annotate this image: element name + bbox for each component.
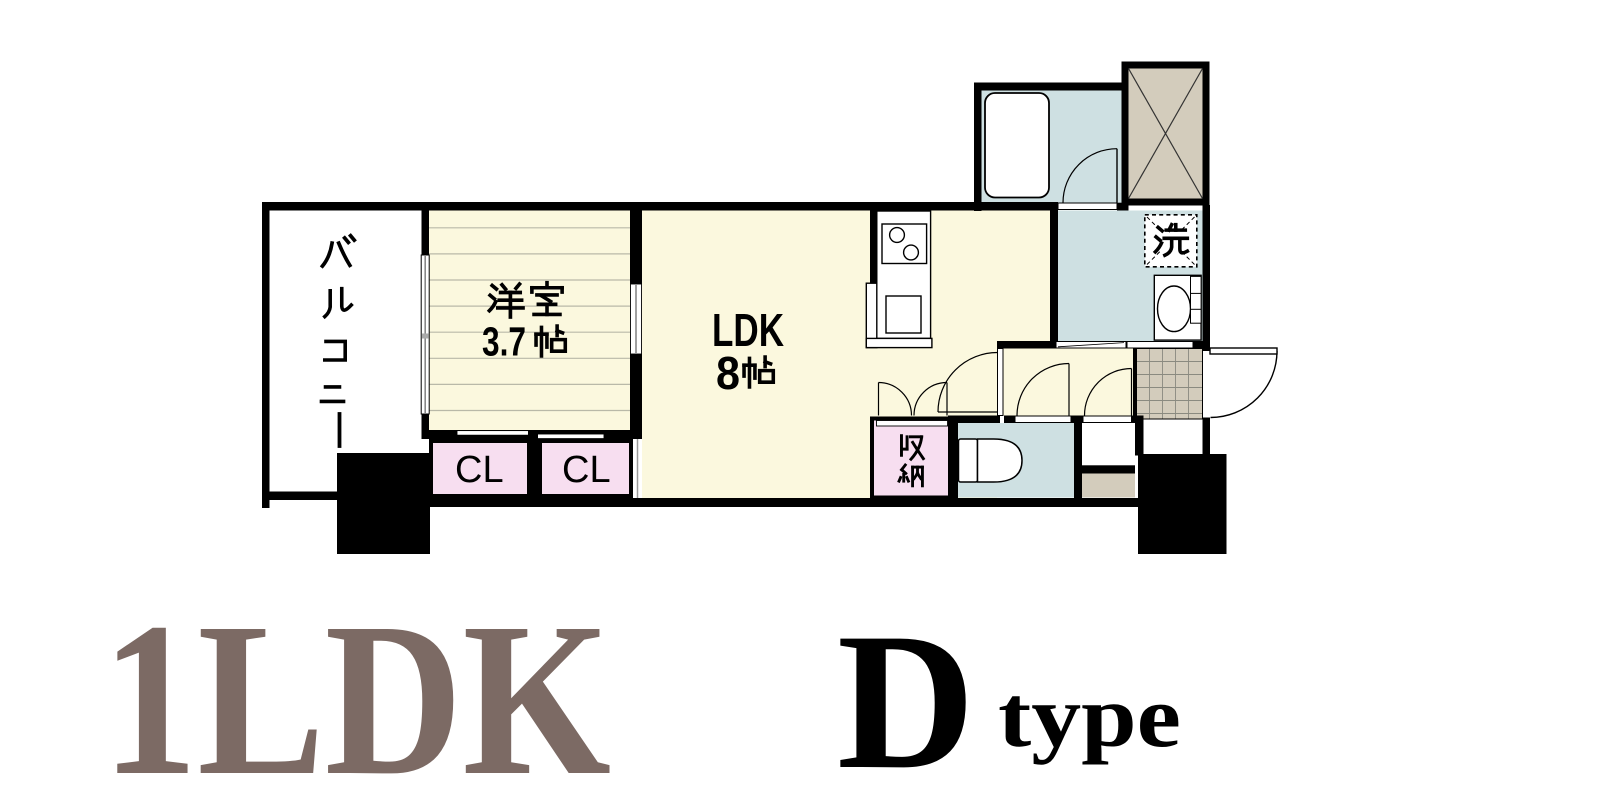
- svg-text:D: D: [837, 593, 975, 800]
- svg-text:1LDK: 1LDK: [102, 577, 611, 800]
- svg-text:CL: CL: [455, 449, 504, 491]
- svg-text:3.7: 3.7: [482, 319, 526, 365]
- svg-text:type: type: [998, 669, 1181, 766]
- svg-text:CL: CL: [562, 449, 611, 491]
- svg-text:8: 8: [716, 347, 740, 399]
